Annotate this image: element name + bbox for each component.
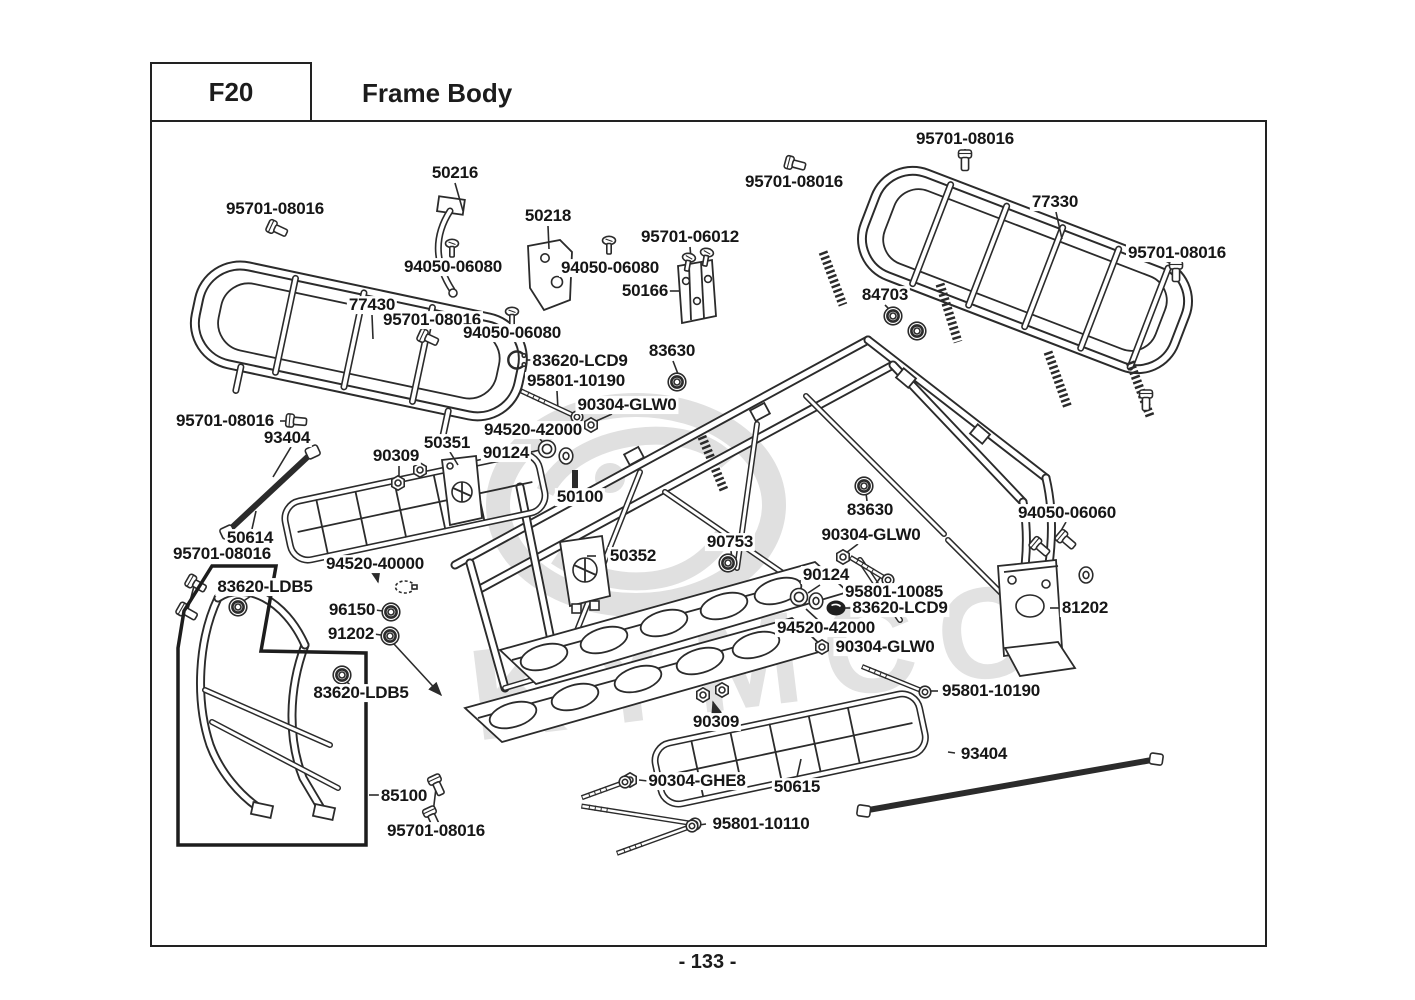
bracket-50218 — [528, 240, 572, 310]
washer-ring-icon — [539, 441, 556, 458]
grommet-icon — [884, 307, 902, 325]
bracket-50351 — [442, 456, 482, 525]
bolt-icon — [959, 150, 972, 171]
grommet-icon — [333, 666, 351, 684]
tie-rod-icon — [855, 751, 1166, 820]
long-bolt-icon — [615, 819, 700, 859]
grommet-icon — [908, 322, 926, 340]
bolt-icon — [416, 328, 440, 348]
manual-page: F20 Frame Body — [0, 0, 1415, 1000]
grommet-icon — [668, 373, 686, 391]
nut-icon — [414, 463, 426, 477]
oring-icon — [827, 601, 846, 616]
rear-carrier-rack — [850, 159, 1199, 381]
section-code: F20 — [209, 77, 254, 108]
bolt-icon — [427, 773, 447, 797]
bolt-icon — [285, 414, 307, 429]
washer-icon — [1079, 567, 1093, 583]
washer-icon — [559, 448, 573, 464]
nut-icon — [716, 683, 728, 697]
front-carrier-rack — [182, 258, 531, 448]
page-number: - 133 - — [150, 951, 1265, 974]
section-code-box: F20 — [150, 62, 312, 122]
tie-rod-icon — [216, 441, 323, 542]
bolt-icon — [265, 219, 289, 239]
grommet-icon — [381, 627, 399, 645]
exploded-diagram: KYMCO — [0, 0, 1415, 1000]
washer-icon — [809, 593, 823, 609]
grommet-icon — [855, 477, 873, 495]
nut-icon — [697, 688, 709, 702]
grommet-icon — [229, 598, 247, 616]
washer-ring-icon — [791, 589, 808, 606]
nut-icon — [585, 418, 597, 432]
bracket-50166 — [678, 260, 716, 323]
bolt-icon — [422, 805, 442, 829]
screw-icon — [603, 236, 616, 254]
nut-icon — [816, 640, 828, 654]
long-bolt-icon — [580, 775, 633, 804]
front-bumper — [201, 591, 338, 820]
grommet-icon — [382, 603, 400, 621]
bolt-icon — [1140, 390, 1153, 411]
bolt-icon — [784, 155, 807, 173]
page-title: Frame Body — [362, 78, 512, 109]
grommet-icon — [719, 554, 737, 572]
screw-icon — [446, 239, 459, 257]
clamp-icon — [396, 581, 418, 593]
nut-icon — [392, 476, 404, 490]
bolt-icon — [1054, 529, 1078, 552]
nut-icon — [837, 550, 849, 564]
